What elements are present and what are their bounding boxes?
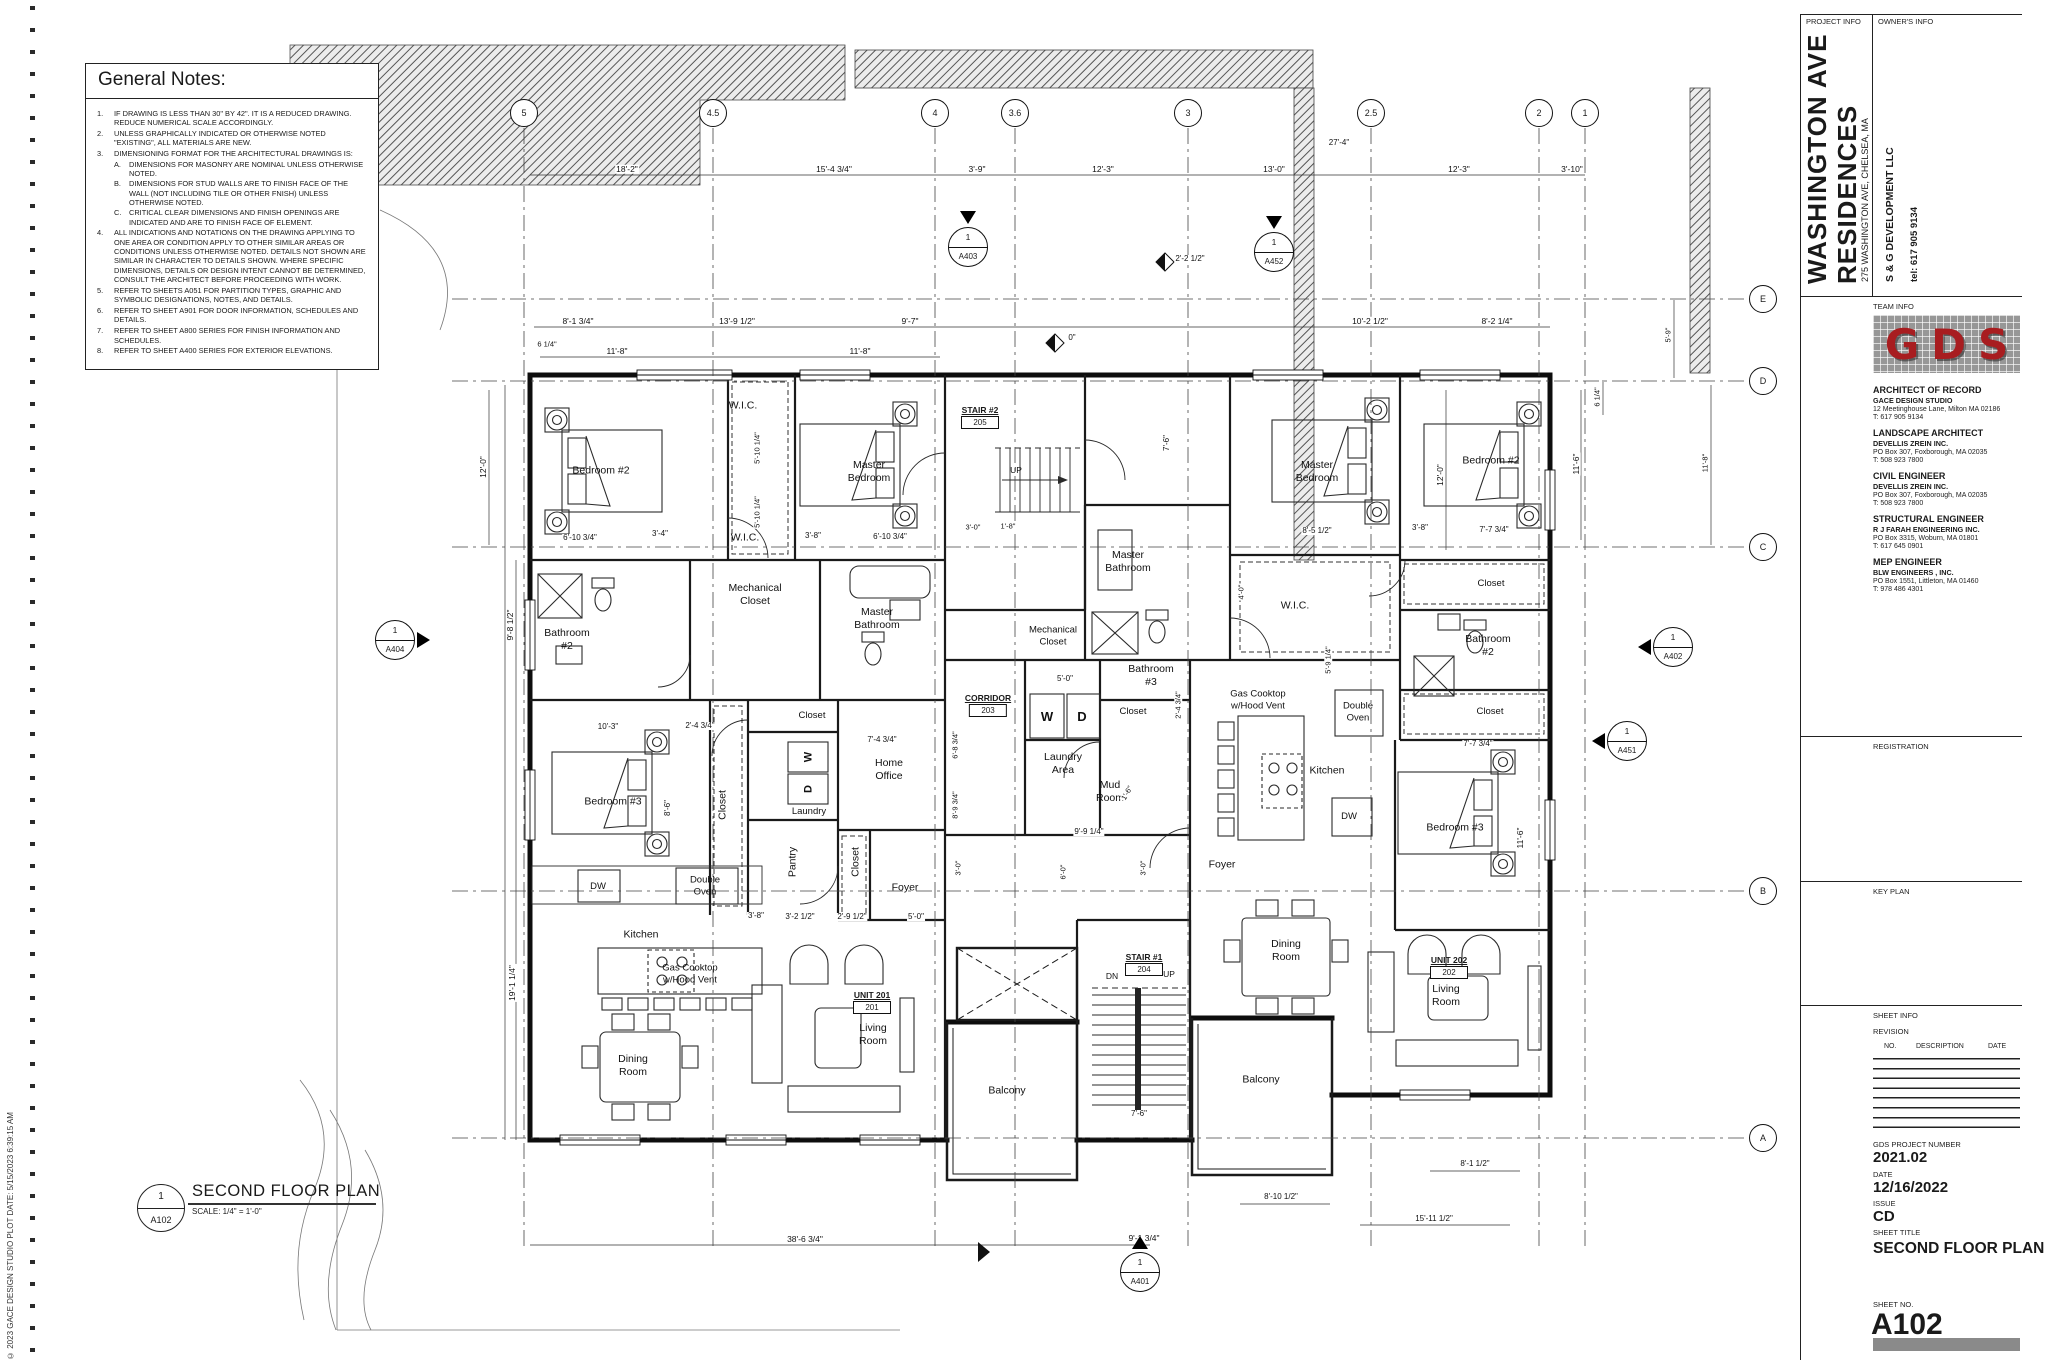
registration-label: REGISTRATION xyxy=(1873,742,1929,751)
plan-title-bubble: 1 A102 xyxy=(137,1184,185,1232)
general-note: 6.REFER TO SHEET A901 FOR DOOR INFORMATI… xyxy=(90,306,372,325)
plan-title: SECOND FLOOR PLAN xyxy=(192,1182,380,1201)
revision-table-lines xyxy=(1873,1058,2020,1136)
team-member-address: 12 Meetinghouse Lane, Milton MA 02186 xyxy=(1873,406,2025,413)
general-note-subnumber: B. xyxy=(114,179,129,207)
stair-2 xyxy=(995,448,1080,512)
general-note-subnumber: A. xyxy=(114,160,129,179)
revision-col-description: DESCRIPTION xyxy=(1916,1043,1964,1050)
date-label: DATE xyxy=(1873,1170,1892,1179)
general-note: 2.UNLESS GRAPHICALLY INDICATED OR OTHERW… xyxy=(90,129,372,148)
team-member-firm: BLW ENGINEERS , INC. xyxy=(1873,568,2025,577)
keyplan-divider xyxy=(1800,881,2022,882)
general-note-number: 4. xyxy=(90,228,114,284)
general-note-number: 8. xyxy=(90,346,114,355)
general-notes-body: 1.IF DRAWING IS LESS THAN 30" BY 42". IT… xyxy=(86,99,378,369)
registration-marks xyxy=(30,6,35,1358)
team-member-address: PO Box 1551, Littleton, MA 01460 xyxy=(1873,578,2025,585)
sheetinfo-divider xyxy=(1800,1005,2022,1006)
general-note-text: UNLESS GRAPHICALLY INDICATED OR OTHERWIS… xyxy=(114,129,372,148)
sheet-no-value: A102 xyxy=(1871,1308,1943,1342)
general-note-number: 6. xyxy=(90,306,114,325)
revision-col-date: DATE xyxy=(1988,1043,2006,1050)
general-note-subitem: C.CRITICAL CLEAR DIMENSIONS AND FINISH O… xyxy=(114,208,369,227)
general-notes-title: General Notes: xyxy=(86,64,378,99)
team-member-role: STRUCTURAL ENGINEER xyxy=(1873,514,2025,524)
general-note-subitem: A.DIMENSIONS FOR MASONRY ARE NOMINAL UNL… xyxy=(114,160,369,179)
plan-detail-number: 1 xyxy=(138,1185,184,1208)
team-member-firm: R J FARAH ENGINEERING INC. xyxy=(1873,525,2025,534)
general-note-subnumber: C. xyxy=(114,208,129,227)
team-member-phone: T: 978 486 4301 xyxy=(1873,586,2025,593)
furniture xyxy=(532,398,1541,1120)
team-member-firm: DEVELLIS ZREIN INC. xyxy=(1873,439,2025,448)
general-note-number: 1. xyxy=(90,109,114,128)
owner-phone: tel: 617 905 9134 xyxy=(1909,36,1920,282)
elevator xyxy=(957,948,1077,1020)
project-info-label: PROJECT INFO xyxy=(1806,17,1861,26)
team-member-address: PO Box 307, Foxborough, MA 02035 xyxy=(1873,492,2025,499)
project-name-line2: RESIDENCES xyxy=(1832,34,1863,284)
team-list: ARCHITECT OF RECORDGACE DESIGN STUDIO12 … xyxy=(1873,378,2025,593)
general-note: 8.REFER TO SHEET A400 SERIES FOR EXTERIO… xyxy=(90,346,372,355)
general-note: 3.DIMENSIONING FORMAT FOR THE ARCHITECTU… xyxy=(90,149,372,227)
team-member-role: LANDSCAPE ARCHITECT xyxy=(1873,428,2025,438)
general-note-number: 3. xyxy=(90,149,114,227)
general-notes-panel: General Notes: 1.IF DRAWING IS LESS THAN… xyxy=(85,63,379,370)
titleblock-top-border xyxy=(1800,14,2022,15)
team-member-role: ARCHITECT OF RECORD xyxy=(1873,385,2025,395)
general-note-subtext: DIMENSIONS FOR STUD WALLS ARE TO FINISH … xyxy=(129,179,369,207)
general-note-text: DIMENSIONING FORMAT FOR THE ARCHITECTURA… xyxy=(114,149,372,227)
copyright-note: © 2023 GACE DESIGN STUDIO PLOT DATE: 5/1… xyxy=(6,960,18,1360)
key-plan-label: KEY PLAN xyxy=(1873,887,1910,896)
general-note: 4.ALL INDICATIONS AND NOTATIONS ON THE D… xyxy=(90,228,372,284)
project-number-label: GDS PROJECT NUMBER xyxy=(1873,1140,1961,1149)
general-note-text: REFER TO SHEET A901 FOR DOOR INFORMATION… xyxy=(114,306,372,325)
general-note: 7.REFER TO SHEET A800 SERIES FOR FINISH … xyxy=(90,326,372,345)
team-member-phone: T: 617 645 0901 xyxy=(1873,543,2025,550)
team-member-phone: T: 617 905 9134 xyxy=(1873,414,2025,421)
gds-logo-text: GDS xyxy=(1885,320,2021,369)
general-note-text: ALL INDICATIONS AND NOTATIONS ON THE DRA… xyxy=(114,228,372,284)
gds-logo: GDS xyxy=(1873,315,2020,373)
team-divider xyxy=(1800,296,2022,297)
titleblock-header-divider xyxy=(1872,14,1873,296)
general-note-text: REFER TO SHEET A400 SERIES FOR EXTERIOR … xyxy=(114,346,372,355)
issue-label: ISSUE xyxy=(1873,1199,1896,1208)
revision-label: REVISION xyxy=(1873,1027,1909,1036)
registration-divider xyxy=(1800,736,2022,737)
general-note: 1.IF DRAWING IS LESS THAN 30" BY 42". IT… xyxy=(90,109,372,128)
project-number-value: 2021.02 xyxy=(1873,1149,1927,1166)
sheet-info-label: SHEET INFO xyxy=(1873,1011,1918,1020)
general-note-subitem: B.DIMENSIONS FOR STUD WALLS ARE TO FINIS… xyxy=(114,179,369,207)
plan-detail-sheet: A102 xyxy=(138,1208,184,1232)
team-member-role: CIVIL ENGINEER xyxy=(1873,471,2025,481)
sheet-title-value: SECOND FLOOR PLAN xyxy=(1873,1240,2044,1258)
general-note-subtext: DIMENSIONS FOR MASONRY ARE NOMINAL UNLES… xyxy=(129,160,369,179)
team-member-phone: T: 508 923 7800 xyxy=(1873,457,2025,464)
issue-value: CD xyxy=(1873,1208,1895,1225)
owner-name: S & G DEVELOPMENT LLC xyxy=(1884,36,1896,282)
owners-info-label: OWNER'S INFO xyxy=(1878,17,1933,26)
plan-scale: SCALE: 1/4" = 1'-0" xyxy=(192,1207,262,1216)
general-note-text: REFER TO SHEET A800 SERIES FOR FINISH IN… xyxy=(114,326,372,345)
stair-1 xyxy=(1092,988,1186,1112)
team-member-firm: DEVELLIS ZREIN INC. xyxy=(1873,482,2025,491)
team-member-firm: GACE DESIGN STUDIO xyxy=(1873,396,2025,405)
general-note-number: 2. xyxy=(90,129,114,148)
team-member-phone: T: 508 923 7800 xyxy=(1873,500,2025,507)
general-note: 5.REFER TO SHEETS A051 FOR PARTITION TYP… xyxy=(90,286,372,305)
team-info-label: TEAM INFO xyxy=(1873,302,1914,311)
project-name-line1: WASHINGTON AVE xyxy=(1802,34,1833,284)
plan-title-rule xyxy=(188,1203,376,1205)
titleblock-gray-bar xyxy=(1873,1338,2020,1351)
team-member-address: PO Box 3315, Woburn, MA 01801 xyxy=(1873,535,2025,542)
general-note-number: 5. xyxy=(90,286,114,305)
general-note-text: REFER TO SHEETS A051 FOR PARTITION TYPES… xyxy=(114,286,372,305)
general-note-text: IF DRAWING IS LESS THAN 30" BY 42". IT I… xyxy=(114,109,372,128)
sheet-title-label: SHEET TITLE xyxy=(1873,1228,1920,1237)
date-value: 12/16/2022 xyxy=(1873,1179,1948,1196)
revision-col-no: NO. xyxy=(1884,1043,1896,1050)
general-note-number: 7. xyxy=(90,326,114,345)
team-member-address: PO Box 307, Foxborough, MA 02035 xyxy=(1873,449,2025,456)
general-note-subtext: CRITICAL CLEAR DIMENSIONS AND FINISH OPE… xyxy=(129,208,369,227)
project-address: 275 WASHINGTON AVE, CHELSEA, MA xyxy=(1860,36,1870,282)
team-member-role: MEP ENGINEER xyxy=(1873,557,2025,567)
